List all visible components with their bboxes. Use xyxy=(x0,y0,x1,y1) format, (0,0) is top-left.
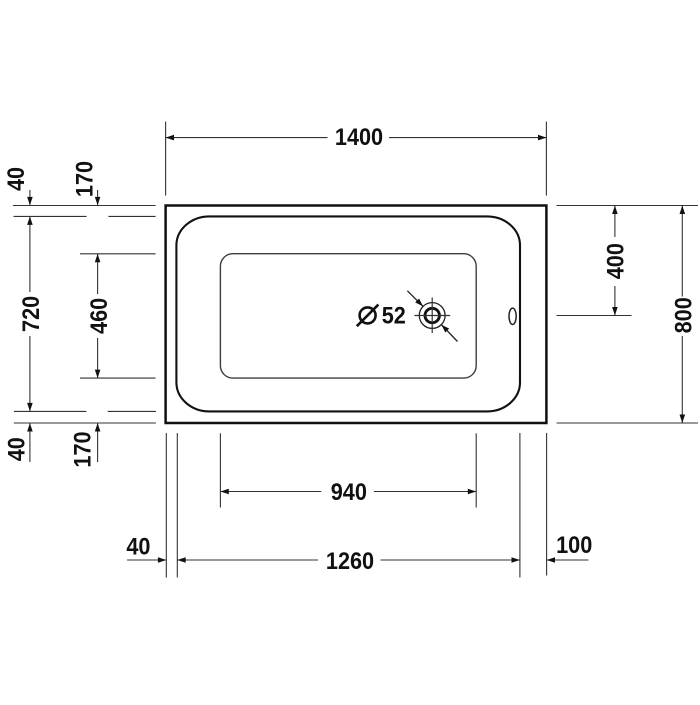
svg-text:170: 170 xyxy=(70,431,97,467)
svg-text:52: 52 xyxy=(382,303,406,330)
svg-text:100: 100 xyxy=(556,532,592,559)
svg-text:940: 940 xyxy=(331,479,367,506)
svg-text:1400: 1400 xyxy=(335,124,383,151)
svg-text:800: 800 xyxy=(671,297,698,333)
svg-text:40: 40 xyxy=(126,533,150,560)
svg-text:460: 460 xyxy=(86,298,113,334)
svg-text:720: 720 xyxy=(18,296,45,332)
svg-text:40: 40 xyxy=(3,437,30,461)
svg-text:1260: 1260 xyxy=(326,548,374,575)
svg-text:40: 40 xyxy=(3,167,30,191)
svg-text:170: 170 xyxy=(72,161,99,197)
svg-text:400: 400 xyxy=(602,243,629,279)
